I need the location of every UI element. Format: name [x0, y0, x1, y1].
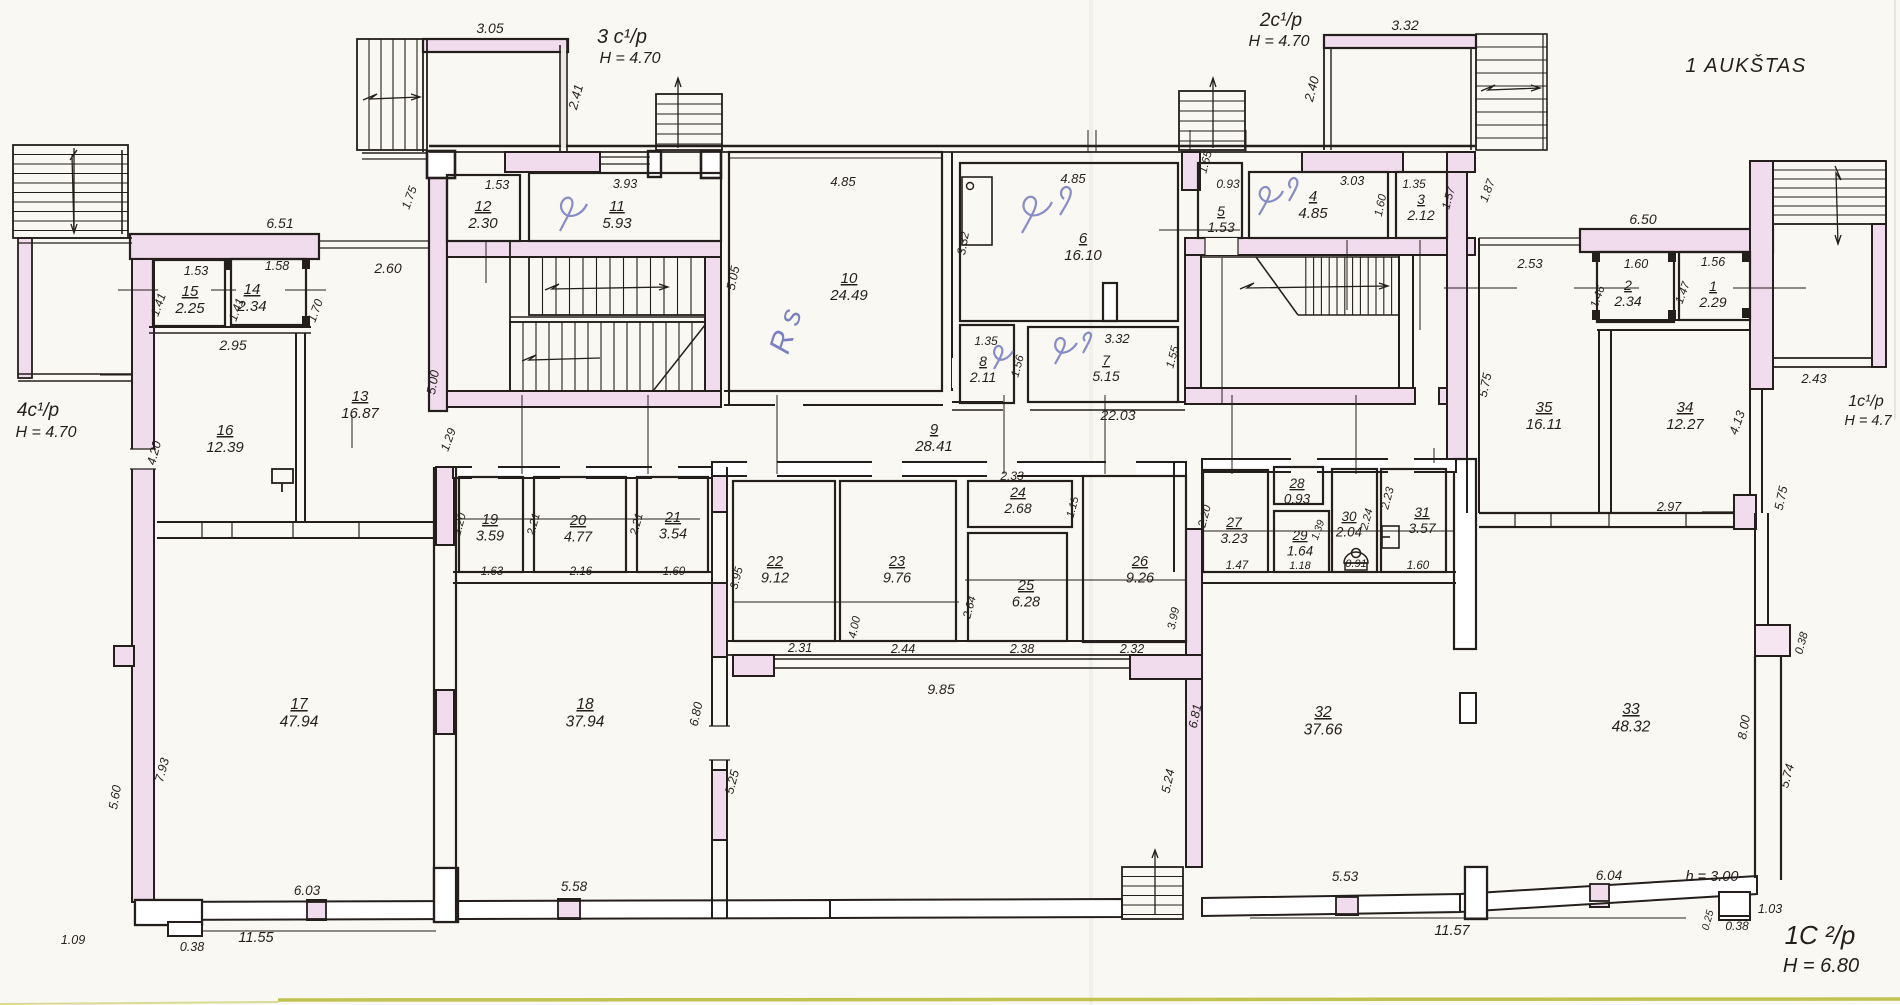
svg-text:2.53: 2.53 — [1516, 256, 1543, 271]
svg-text:9.85: 9.85 — [927, 681, 954, 697]
svg-text:1.18: 1.18 — [1289, 560, 1311, 572]
svg-text:22: 22 — [766, 554, 783, 570]
svg-text:H = 4.7: H = 4.7 — [1844, 413, 1892, 429]
svg-text:16.87: 16.87 — [341, 405, 379, 422]
svg-text:26: 26 — [1131, 554, 1149, 570]
svg-text:5.93: 5.93 — [602, 215, 632, 232]
svg-text:1.60: 1.60 — [663, 566, 686, 578]
svg-text:9.12: 9.12 — [761, 571, 789, 587]
svg-text:1C ²/p: 1C ²/p — [1785, 920, 1856, 950]
svg-text:2.95: 2.95 — [218, 337, 246, 353]
svg-text:H = 4.70: H = 4.70 — [600, 50, 661, 67]
svg-text:34: 34 — [1677, 399, 1694, 416]
svg-text:31: 31 — [1414, 504, 1430, 520]
svg-text:8: 8 — [979, 353, 987, 369]
svg-text:17: 17 — [290, 696, 309, 713]
svg-text:2.31: 2.31 — [787, 641, 812, 655]
svg-text:30: 30 — [1341, 509, 1357, 524]
svg-text:47.94: 47.94 — [280, 714, 319, 731]
svg-text:12.27: 12.27 — [1666, 416, 1704, 433]
svg-text:0.38: 0.38 — [180, 940, 204, 954]
svg-text:h = 3.00: h = 3.00 — [1686, 869, 1739, 885]
svg-text:6.04: 6.04 — [1596, 868, 1622, 883]
svg-text:6.51: 6.51 — [266, 215, 293, 231]
svg-text:16.11: 16.11 — [1526, 416, 1562, 433]
svg-text:2.34: 2.34 — [1613, 293, 1641, 309]
svg-text:H = 6.80: H = 6.80 — [1783, 955, 1859, 977]
svg-text:2.33: 2.33 — [999, 469, 1024, 483]
svg-text:5: 5 — [1217, 203, 1225, 219]
svg-text:1 AUKŠTAS: 1 AUKŠTAS — [1685, 54, 1806, 77]
svg-text:0.38: 0.38 — [1725, 919, 1749, 933]
svg-text:11: 11 — [609, 198, 625, 215]
svg-text:5.15: 5.15 — [1092, 368, 1119, 384]
svg-text:4.85: 4.85 — [830, 174, 856, 189]
svg-text:2c¹/p: 2c¹/p — [1259, 10, 1302, 31]
svg-text:37.94: 37.94 — [566, 714, 605, 731]
svg-text:H = 4.70: H = 4.70 — [1249, 33, 1310, 50]
svg-text:1.53: 1.53 — [1207, 219, 1234, 235]
svg-text:2.16: 2.16 — [569, 566, 593, 578]
svg-text:1.56: 1.56 — [1701, 255, 1725, 269]
svg-text:4.85: 4.85 — [1298, 205, 1328, 222]
svg-text:0.91: 0.91 — [1345, 558, 1366, 570]
svg-text:3.59: 3.59 — [476, 529, 504, 545]
svg-text:2.38: 2.38 — [1009, 642, 1034, 656]
svg-text:9.26: 9.26 — [1126, 571, 1155, 587]
svg-text:5.53: 5.53 — [1332, 869, 1359, 884]
svg-text:21: 21 — [664, 510, 681, 526]
svg-text:3.93: 3.93 — [613, 177, 637, 191]
svg-text:13: 13 — [352, 388, 369, 405]
svg-text:11.57: 11.57 — [1434, 923, 1470, 939]
svg-text:14: 14 — [244, 281, 261, 298]
svg-text:29: 29 — [1291, 528, 1308, 543]
svg-text:4: 4 — [1309, 188, 1317, 205]
svg-text:3: 3 — [1417, 191, 1425, 207]
svg-text:3.57: 3.57 — [1408, 520, 1436, 536]
svg-text:3.03: 3.03 — [1340, 174, 1364, 188]
svg-text:6.50: 6.50 — [1629, 211, 1656, 227]
svg-text:3.54: 3.54 — [659, 527, 687, 543]
svg-text:2.68: 2.68 — [1003, 500, 1031, 516]
svg-text:1.63: 1.63 — [481, 566, 504, 578]
svg-text:2.11: 2.11 — [969, 369, 996, 385]
svg-text:1.60: 1.60 — [1624, 257, 1648, 271]
svg-text:33: 33 — [1622, 701, 1640, 718]
svg-text:1.35: 1.35 — [1402, 177, 1426, 191]
svg-text:11.55: 11.55 — [238, 930, 274, 946]
svg-text:24: 24 — [1009, 484, 1026, 500]
svg-text:20: 20 — [569, 513, 586, 529]
svg-text:27: 27 — [1225, 514, 1243, 530]
svg-text:4.85: 4.85 — [1060, 171, 1086, 186]
svg-text:6.03: 6.03 — [294, 883, 321, 898]
svg-text:2.43: 2.43 — [1800, 371, 1827, 386]
svg-text:35: 35 — [1536, 399, 1553, 416]
svg-text:32: 32 — [1314, 704, 1332, 721]
svg-text:2: 2 — [1623, 277, 1632, 293]
svg-text:3.32: 3.32 — [1104, 331, 1130, 346]
svg-text:4.77: 4.77 — [564, 530, 593, 546]
svg-text:1.09: 1.09 — [61, 933, 85, 947]
svg-text:16.10: 16.10 — [1064, 247, 1102, 264]
svg-text:2.29: 2.29 — [1698, 294, 1726, 310]
svg-text:12.39: 12.39 — [206, 439, 244, 456]
svg-text:2.97: 2.97 — [1656, 500, 1682, 514]
svg-text:1: 1 — [1709, 278, 1717, 294]
svg-text:1.53: 1.53 — [184, 264, 208, 278]
svg-text:22.03: 22.03 — [1099, 407, 1135, 423]
svg-text:2.30: 2.30 — [467, 215, 498, 232]
svg-text:6.28: 6.28 — [1012, 595, 1040, 611]
svg-text:2.12: 2.12 — [1406, 207, 1434, 223]
svg-text:28: 28 — [1288, 476, 1305, 491]
svg-text:5.58: 5.58 — [561, 879, 588, 894]
svg-text:19: 19 — [482, 512, 498, 528]
svg-text:1.58: 1.58 — [265, 259, 289, 273]
svg-text:1.47: 1.47 — [1226, 560, 1249, 572]
svg-text:10: 10 — [841, 270, 858, 287]
svg-text:12: 12 — [475, 198, 492, 215]
svg-text:3.23: 3.23 — [1220, 530, 1247, 546]
svg-text:28.41: 28.41 — [914, 438, 953, 455]
svg-text:48.32: 48.32 — [1612, 719, 1651, 736]
svg-text:7: 7 — [1102, 352, 1111, 368]
svg-text:3.32: 3.32 — [1391, 17, 1418, 33]
svg-text:0.93: 0.93 — [1216, 177, 1240, 191]
svg-text:3.05: 3.05 — [476, 20, 503, 36]
svg-text:24.49: 24.49 — [829, 287, 868, 304]
svg-text:15: 15 — [182, 283, 199, 300]
svg-text:6: 6 — [1079, 230, 1088, 247]
svg-text:25: 25 — [1017, 578, 1035, 594]
svg-text:0.93: 0.93 — [1284, 492, 1311, 507]
svg-text:9: 9 — [930, 421, 939, 438]
svg-text:18: 18 — [576, 696, 594, 713]
svg-text:2.44: 2.44 — [890, 642, 915, 656]
svg-text:1.64: 1.64 — [1287, 544, 1313, 559]
svg-text:16: 16 — [217, 422, 234, 439]
svg-text:2.32: 2.32 — [1119, 642, 1144, 656]
svg-text:2.25: 2.25 — [174, 300, 205, 317]
svg-text:1c¹/p: 1c¹/p — [1848, 393, 1884, 410]
svg-text:H = 4.70: H = 4.70 — [16, 424, 77, 441]
svg-text:3 c¹/p: 3 c¹/p — [597, 26, 647, 48]
svg-text:1.35: 1.35 — [974, 334, 998, 348]
svg-text:23: 23 — [888, 554, 905, 570]
svg-text:4c¹/p: 4c¹/p — [17, 400, 59, 421]
svg-text:2.60: 2.60 — [373, 260, 401, 276]
svg-text:37.66: 37.66 — [1304, 722, 1343, 739]
svg-text:1.03: 1.03 — [1758, 902, 1782, 916]
svg-text:9.76: 9.76 — [883, 571, 912, 587]
svg-text:1.60: 1.60 — [1407, 560, 1430, 572]
svg-text:1.53: 1.53 — [485, 178, 509, 192]
